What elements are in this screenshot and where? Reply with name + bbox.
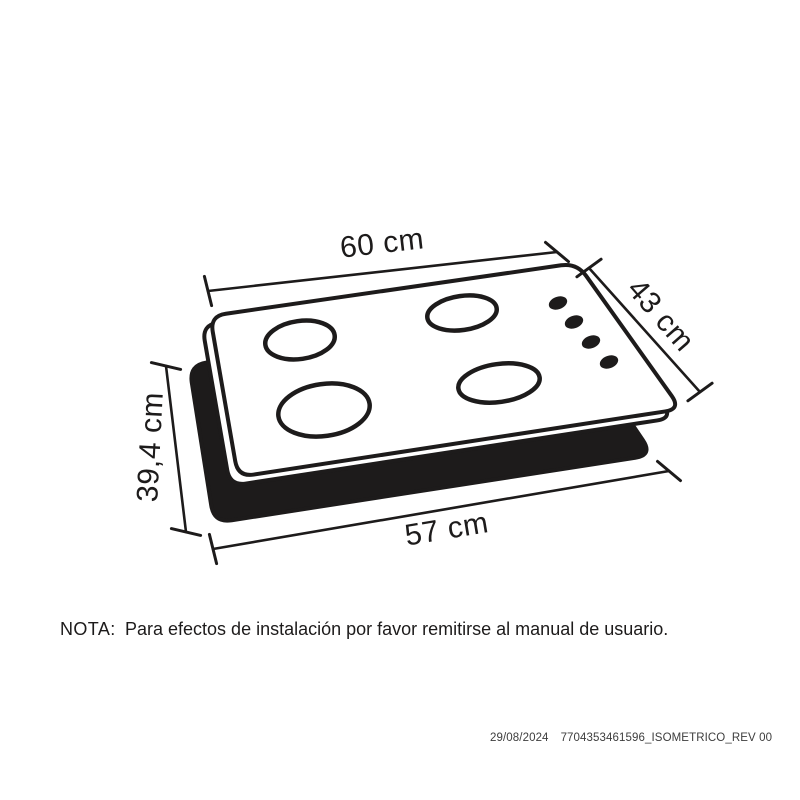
page: 60 cm 43 cm 39,4 cm 57 cm NOTA: Para efe…: [0, 0, 800, 800]
footer-date: 29/08/2024: [490, 732, 549, 744]
footer-document-code: 7704353461596_ISOMETRICO_REV 00: [561, 732, 773, 744]
note-text: Para efectos de instalación por favor re…: [125, 619, 668, 639]
installation-note: NOTA: Para efectos de instalación por fa…: [60, 619, 740, 639]
cooktop-isometric-diagram: 60 cm 43 cm 39,4 cm 57 cm: [0, 0, 800, 800]
note-label: NOTA:: [60, 619, 125, 639]
footer-document-info: 29/08/2024 7704353461596_ISOMETRICO_REV …: [490, 732, 772, 744]
dim-label-60cm: 60 cm: [338, 222, 425, 264]
dim-line-394cm: [166, 366, 186, 532]
dim-tick-57cm-right: [658, 461, 681, 480]
dim-tick-43cm-bottom: [688, 383, 712, 401]
dim-label-394cm: 39,4 cm: [131, 391, 170, 503]
